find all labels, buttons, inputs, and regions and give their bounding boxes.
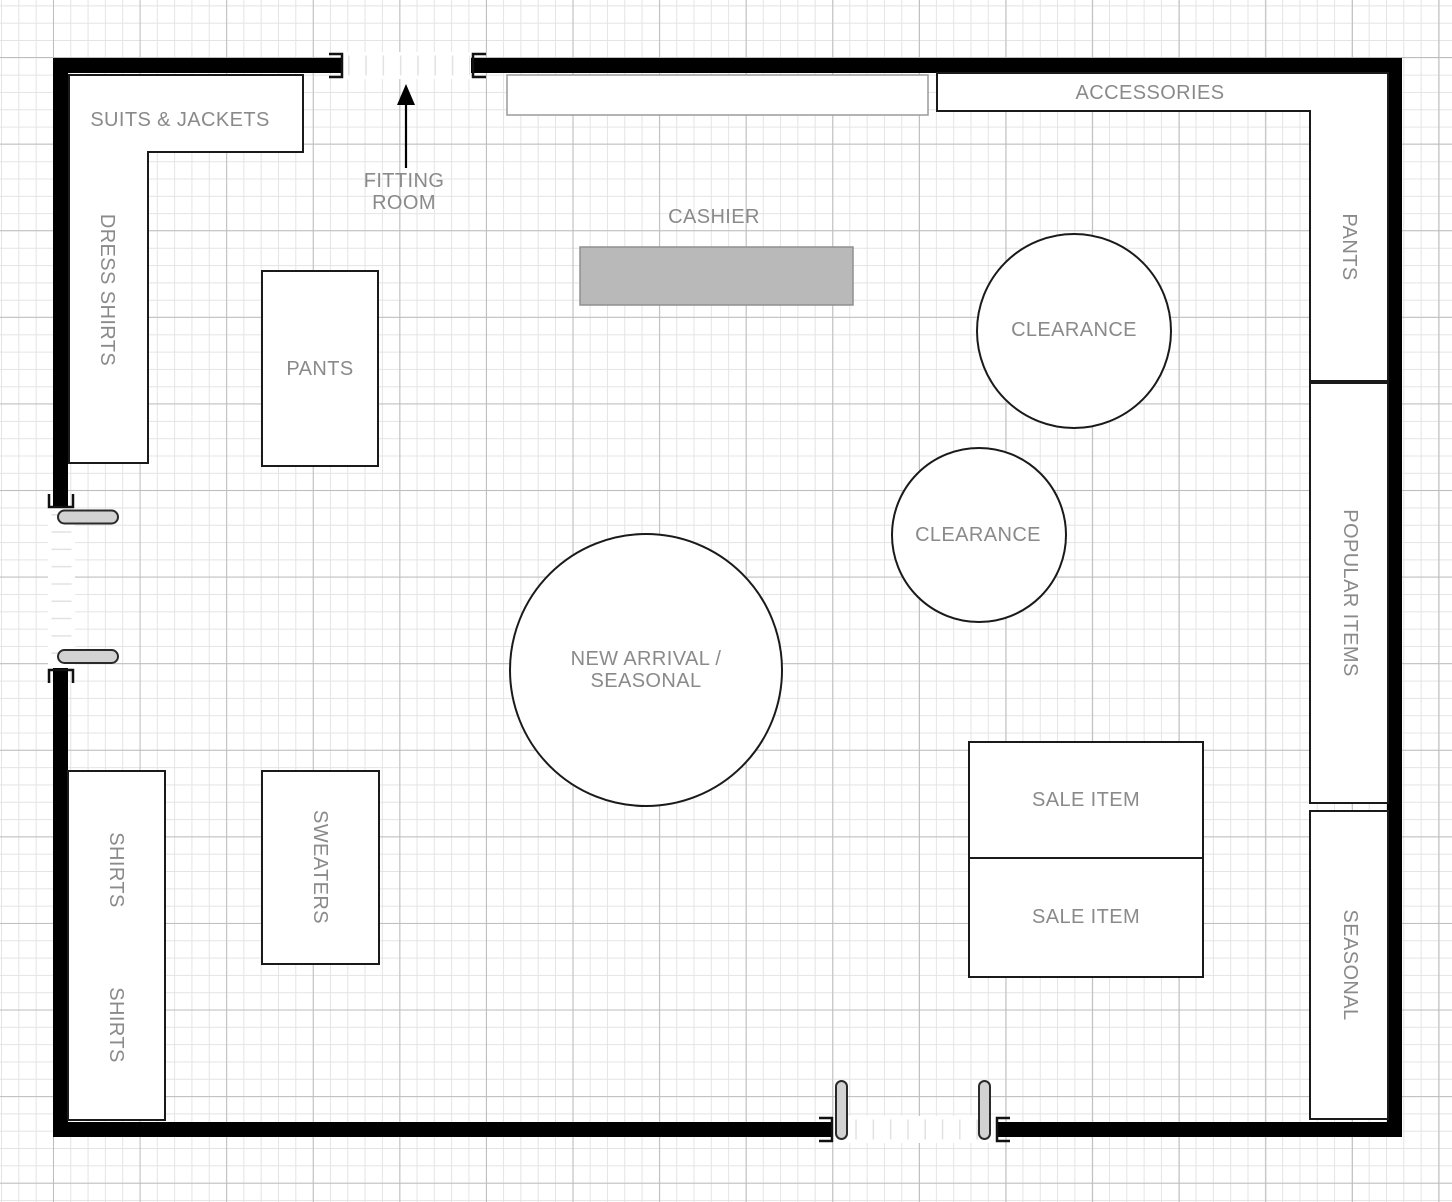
label-sale-item-2: SALE ITEM xyxy=(1032,906,1140,928)
label-clearance-2: CLEARANCE xyxy=(915,524,1041,546)
label-pants-wall: PANTS xyxy=(1338,213,1360,280)
label-popular-items: POPULAR ITEMS xyxy=(1339,509,1361,676)
label-sale-item-1: SALE ITEM xyxy=(1032,789,1140,811)
shirts-rack xyxy=(68,771,165,1120)
door-opening-bottom xyxy=(833,1116,996,1143)
door-marker xyxy=(58,650,118,663)
floor-plan-canvas: SUITS & JACKETS DRESS SHIRTS FITTING ROO… xyxy=(0,0,1452,1202)
label-accessories: ACCESSORIES xyxy=(1076,82,1225,104)
label-dress-shirts: DRESS SHIRTS xyxy=(96,214,118,366)
wall-bottom-right-segment xyxy=(996,1122,1402,1137)
wall-top-right-segment xyxy=(471,58,1402,73)
up-arrow-icon xyxy=(397,84,415,168)
unlabeled-shelf xyxy=(507,75,928,115)
floor-plan-drawing xyxy=(0,0,1452,1202)
label-suits-jackets: SUITS & JACKETS xyxy=(90,109,269,131)
label-sweaters: SWEATERS xyxy=(309,810,331,924)
wall-top-left-segment xyxy=(53,58,343,73)
door-marker xyxy=(979,1081,990,1139)
wall-bottom-left-segment xyxy=(53,1122,833,1137)
wall-left-upper-segment xyxy=(53,58,68,508)
label-cashier: CASHIER xyxy=(668,206,760,228)
label-seasonal-wall: SEASONAL xyxy=(1339,909,1361,1020)
label-shirts-lower: SHIRTS xyxy=(105,987,127,1062)
door-marker xyxy=(836,1081,847,1139)
label-clearance-1: CLEARANCE xyxy=(1011,319,1137,341)
wall-left-lower-segment xyxy=(53,668,68,1137)
door-marker xyxy=(58,511,118,524)
label-pants-table: PANTS xyxy=(286,358,353,380)
label-fitting-room: FITTING ROOM xyxy=(364,170,445,214)
wall-right xyxy=(1387,58,1402,1137)
label-new-arrival-seasonal: NEW ARRIVAL / SEASONAL xyxy=(571,648,722,692)
cashier-counter xyxy=(580,247,853,305)
label-shirts-upper: SHIRTS xyxy=(105,832,127,907)
